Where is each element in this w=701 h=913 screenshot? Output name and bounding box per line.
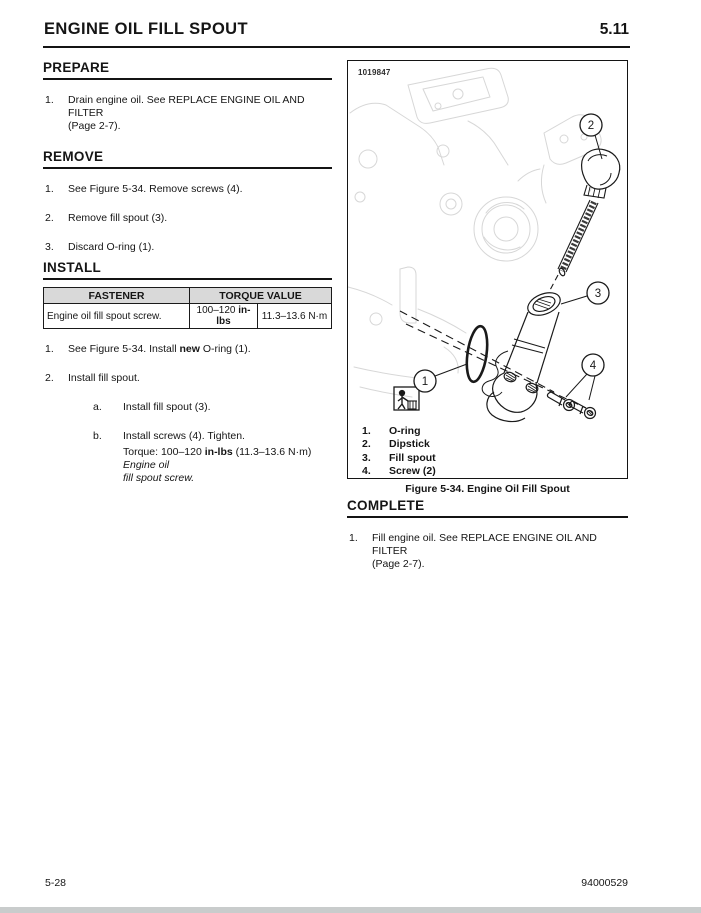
remove-heading: REMOVE (43, 149, 332, 169)
legend-item-label: O-ring (389, 425, 421, 437)
remove-steps: 1.See Figure 5-34. Remove screws (4).2.R… (43, 183, 332, 254)
list-item-number: 2. (45, 212, 54, 225)
list-item-text: See Figure 5-34. Install new O-ring (1). (68, 343, 332, 356)
install-steps: 1.See Figure 5-34. Install new O-ring (1… (43, 343, 332, 485)
legend-item: 4.Screw (2) (362, 465, 436, 478)
list-item-text: Remove fill spout (3). (68, 212, 332, 225)
list-item-number: 3. (45, 241, 54, 254)
callout-3: 3 (587, 282, 609, 304)
legend-item-label: Screw (2) (389, 465, 436, 477)
legend-item: 3.Fill spout (362, 452, 436, 465)
prepare-steps: 1.Drain engine oil. See REPLACE ENGINE O… (43, 94, 332, 133)
bottom-scan-bar (0, 907, 701, 913)
callout-4: 4 (582, 354, 604, 376)
legend-item: 2.Dipstick (362, 438, 436, 451)
footer-page-number: 5-28 (45, 877, 66, 889)
list-item-number: 1. (45, 94, 54, 107)
list-item-text: Install fill spout (3). (123, 401, 332, 414)
prepare-heading: PREPARE (43, 60, 332, 80)
legend-item-number: 3. (362, 452, 389, 465)
legend-item-number: 1. (362, 425, 389, 438)
figure-caption: Figure 5-34. Engine Oil Fill Spout (347, 483, 628, 495)
callout-3-number: 3 (595, 288, 601, 300)
fastener-cell: Engine oil fill spout screw. (44, 304, 190, 329)
callout-4-number: 4 (590, 360, 597, 372)
screws (547, 392, 595, 419)
list-item: 3.Discard O-ring (1). (43, 241, 332, 254)
left-column: PREPARE 1.Drain engine oil. See REPLACE … (43, 58, 332, 485)
fastener-torque-table: FASTENER TORQUE VALUE Engine oil fill sp… (43, 287, 332, 329)
figure-legend: 1.O-ring2.Dipstick3.Fill spout4.Screw (2… (362, 425, 436, 479)
list-item-text: Fill engine oil. See REPLACE ENGINE OIL … (372, 532, 628, 571)
page-title: ENGINE OIL FILL SPOUT (44, 20, 248, 39)
list-item-number: 2. (45, 372, 54, 385)
discard-icon (394, 387, 419, 410)
complete-steps: 1.Fill engine oil. See REPLACE ENGINE OI… (347, 532, 628, 571)
legend-item: 1.O-ring (362, 425, 436, 438)
engine-background-art (348, 68, 601, 397)
table-header-fastener: FASTENER (44, 288, 190, 304)
figure-5-34: 1 2 3 4 1019847 1.O-ring2.Dipstick3.Fill… (347, 60, 628, 479)
list-item-text: Torque: 100–120 in-lbs (11.3–13.6 N·m) E… (123, 446, 332, 485)
list-item-number: b. (93, 430, 102, 443)
list-item: 2.Install fill spout. (43, 372, 332, 385)
list-item-text: Drain engine oil. See REPLACE ENGINE OIL… (68, 94, 332, 133)
list-item-number: 1. (349, 532, 358, 545)
list-item-text: Install fill spout. (68, 372, 332, 385)
list-item: 1.See Figure 5-34. Install new O-ring (1… (43, 343, 332, 356)
list-item: 1.See Figure 5-34. Remove screws (4). (43, 183, 332, 196)
legend-item-number: 2. (362, 438, 389, 451)
list-item-text: See Figure 5-34. Remove screws (4). (68, 183, 332, 196)
footer-document-number: 94000529 (581, 877, 628, 889)
table-row: Engine oil fill spout screw. 100–120 in-… (44, 304, 332, 329)
callout-leaders (435, 135, 602, 400)
list-item: 1.Drain engine oil. See REPLACE ENGINE O… (43, 94, 332, 133)
list-item: b.Install screws (4). Tighten. (43, 430, 332, 443)
complete-section: COMPLETE 1.Fill engine oil. See REPLACE … (347, 498, 628, 571)
o-ring (464, 325, 491, 383)
callout-2-number: 2 (588, 120, 594, 132)
torque-metric-cell: 11.3–13.6 N·m (258, 304, 332, 329)
list-item: 2.Remove fill spout (3). (43, 212, 332, 225)
manual-page: ENGINE OIL FILL SPOUT 5.11 PREPARE 1.Dra… (0, 0, 701, 913)
callout-2: 2 (580, 114, 602, 136)
legend-item-number: 4. (362, 465, 389, 478)
torque-range: 100–120 (197, 305, 239, 316)
complete-heading: COMPLETE (347, 498, 628, 518)
list-item-number: a. (93, 401, 102, 414)
legend-item-label: Fill spout (389, 452, 436, 464)
callout-1-number: 1 (422, 376, 428, 388)
figure-illustration: 1 2 3 4 (348, 61, 626, 477)
list-item-text: Install screws (4). Tighten. (123, 430, 332, 443)
section-number: 5.11 (600, 21, 629, 39)
list-item: Torque: 100–120 in-lbs (11.3–13.6 N·m) E… (43, 446, 332, 485)
install-heading: INSTALL (43, 260, 332, 280)
callout-1: 1 (414, 370, 436, 392)
legend-item-label: Dipstick (389, 438, 430, 450)
list-item-text: Discard O-ring (1). (68, 241, 332, 254)
header-rule (43, 46, 630, 48)
torque-inlbs-cell: 100–120 in-lbs (190, 304, 258, 329)
list-item: 1.Fill engine oil. See REPLACE ENGINE OI… (347, 532, 628, 571)
list-item-number: 1. (45, 183, 54, 196)
table-header-torque-value: TORQUE VALUE (190, 288, 332, 304)
figure-id-number: 1019847 (358, 68, 391, 77)
list-item: a.Install fill spout (3). (43, 401, 332, 414)
list-item-number: 1. (45, 343, 54, 356)
fill-spout (482, 288, 563, 421)
dipstick (558, 149, 620, 277)
